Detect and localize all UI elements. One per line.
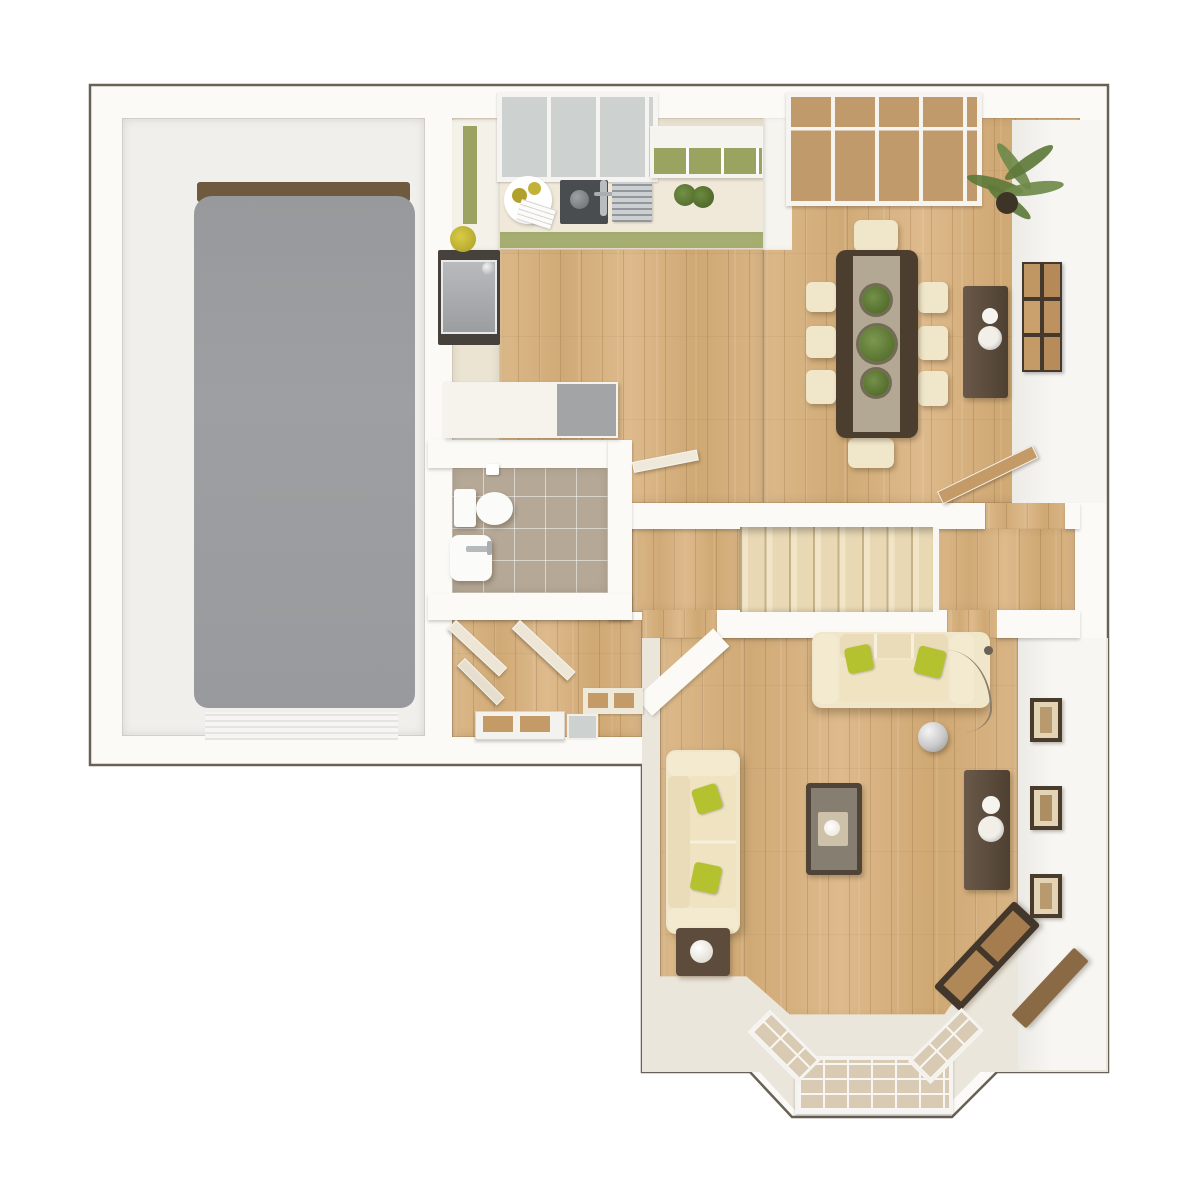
basin-tap-handle [487, 541, 492, 555]
chair-right-3 [918, 371, 948, 406]
arc-lamp-shade [918, 722, 948, 752]
drainer-rack [612, 182, 652, 222]
chair-right-1 [918, 282, 948, 313]
plant-bowl-1 [862, 286, 890, 314]
wall-stairs-south-right [997, 610, 1080, 638]
chair-top [854, 220, 898, 252]
chair-bottom [848, 438, 894, 468]
dishwasher [557, 384, 616, 436]
picture-frame-2 [1030, 786, 1062, 830]
front-door-panel-2 [520, 716, 550, 732]
wall-kitchen-south [617, 503, 985, 529]
breakfast-plate-2 [528, 182, 541, 195]
floor-plan-canvas [0, 0, 1200, 1200]
sideboard-vase-1 [982, 308, 998, 324]
console-vase-2 [978, 816, 1004, 842]
art-tile [1044, 337, 1060, 370]
cushion-green [844, 644, 875, 675]
kitchen-window-green-strip [463, 126, 477, 224]
kettle [482, 262, 495, 275]
sofa-2-back [668, 776, 690, 908]
flower-vase-yellow [450, 226, 476, 252]
dining-doorway-floor [985, 503, 1065, 529]
stairs-bottom-floor [632, 527, 740, 612]
palm-pot [996, 192, 1018, 214]
basin [450, 535, 492, 581]
picture-frame-3 [1030, 874, 1062, 918]
stair-landing-edge [933, 527, 939, 612]
picture-frame-1 [1030, 698, 1062, 742]
stairs-landing-floor [935, 527, 1075, 612]
console-vase-1 [982, 796, 1000, 814]
hob-pan [570, 190, 589, 209]
sofa-2-armrest-top [668, 752, 738, 776]
garage-door [205, 712, 398, 740]
kitchen-window [497, 92, 658, 182]
garage-floor-pad [194, 196, 415, 708]
frame-art [1040, 707, 1052, 733]
art-tile [1044, 301, 1060, 334]
toilet-roll [486, 464, 499, 475]
front-door-sidelight [567, 714, 598, 740]
wall-cabinet-shelves [654, 148, 762, 174]
shoe-cabinet-panel-2 [614, 693, 634, 708]
wall-wc-south [428, 593, 632, 620]
art-tile [1044, 264, 1060, 297]
sink-faucet-bar [594, 192, 614, 196]
frame-art [1040, 795, 1052, 821]
cushion-green [689, 861, 722, 894]
chair-left-2 [806, 326, 836, 358]
shoe-cabinet-panel-1 [588, 693, 608, 708]
toilet-bowl [476, 492, 513, 525]
art-tile [1024, 337, 1040, 370]
sink-faucet [600, 180, 607, 216]
kitchen-cabinet-front [497, 232, 765, 248]
art-tile [1024, 301, 1040, 334]
plant-bowl-3 [863, 370, 889, 396]
coffee-cup [824, 820, 840, 836]
table-lamp [690, 940, 713, 963]
wall-wc-north [428, 440, 632, 468]
chair-left-1 [806, 282, 836, 312]
toilet-cistern [454, 489, 476, 527]
sofa-3-armrest-left [814, 634, 838, 704]
arc-lamp-base [984, 646, 993, 655]
chair-left-3 [806, 370, 836, 404]
wall-kitchen-south-return [1065, 503, 1080, 529]
herb-pot-2 [692, 186, 714, 208]
frame-art [1040, 883, 1052, 909]
plant-bowl-2 [859, 326, 895, 362]
sideboard-vase-2 [978, 326, 1002, 350]
french-doors [786, 92, 982, 206]
front-door-panel-1 [483, 716, 513, 732]
wall-art-grid [1022, 262, 1062, 372]
art-tile [1024, 264, 1040, 297]
stair-treads [740, 527, 935, 612]
chair-right-2 [918, 326, 948, 360]
